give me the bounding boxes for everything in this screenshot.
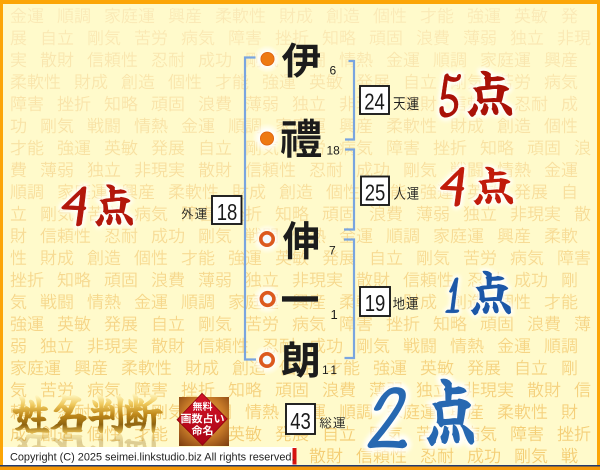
svg-text:43: 43 xyxy=(290,408,311,434)
svg-text:7: 7 xyxy=(329,244,336,258)
svg-text:25: 25 xyxy=(365,180,386,206)
svg-text:6: 6 xyxy=(330,64,337,78)
svg-text:18: 18 xyxy=(217,199,238,225)
svg-text:11: 11 xyxy=(322,363,337,377)
svg-text:19: 19 xyxy=(365,290,386,316)
svg-text:18: 18 xyxy=(327,144,341,158)
svg-text:1: 1 xyxy=(331,307,338,322)
svg-text:Copyright (C) 2025 seimei.link: Copyright (C) 2025 seimei.linkstudio.biz… xyxy=(10,452,295,464)
svg-text:24: 24 xyxy=(364,89,385,115)
